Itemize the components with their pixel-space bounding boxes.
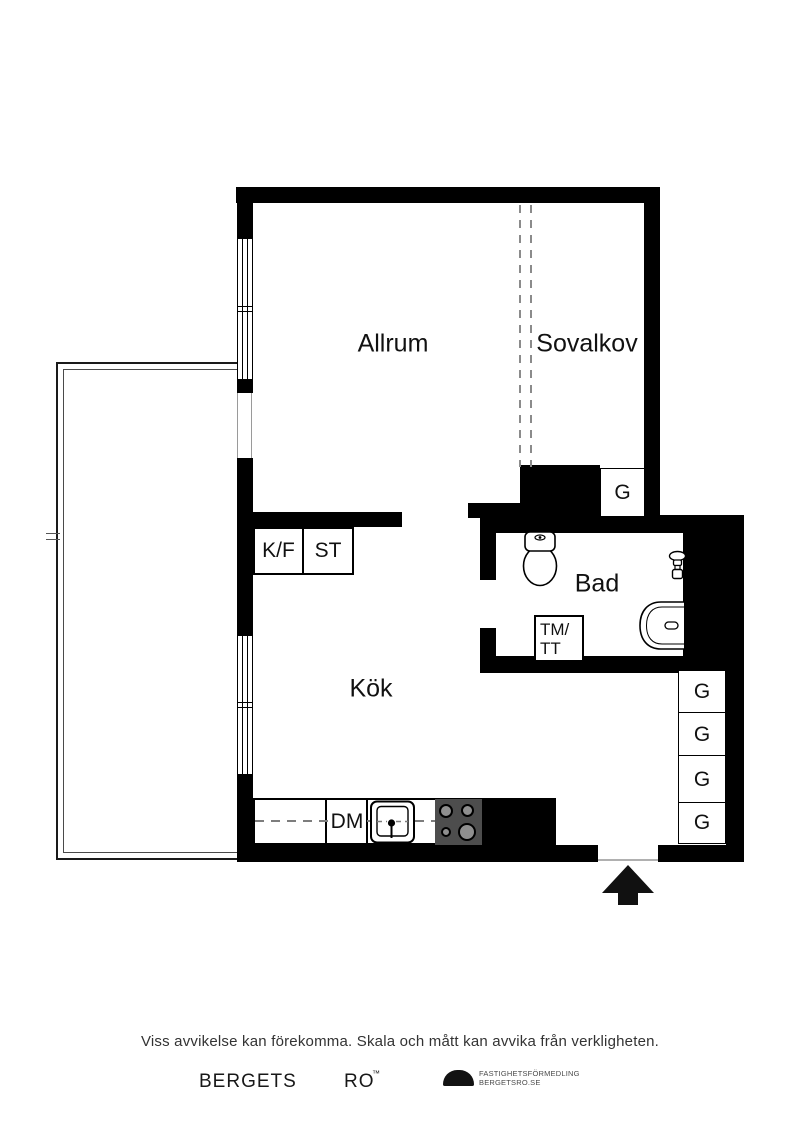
washer-label: TM/ — [540, 620, 569, 639]
wall-right-lower — [726, 663, 744, 862]
room-label-allrum: Allrum — [358, 330, 429, 359]
wall-left-top — [237, 187, 253, 238]
wall-top — [236, 187, 660, 203]
agency-logo-icon — [443, 1070, 474, 1086]
window-allrum-icon — [237, 238, 253, 380]
wall-closet-block — [520, 465, 600, 517]
disclaimer-text: Viss avvikelse kan förekomma. Skala och … — [141, 1033, 659, 1050]
window-kitchen-icon — [237, 635, 253, 775]
balcony-door-jamb — [237, 393, 238, 458]
cleaning-closet-label: ST — [315, 539, 342, 563]
brand-word-bergets: BERGETS — [199, 1071, 297, 1093]
balcony-railing-joint — [46, 539, 60, 540]
agency-line2: BERGETSRO.SE — [479, 1079, 580, 1088]
wall-bath-left-upper — [480, 533, 496, 580]
room-label-bad: Bad — [575, 570, 619, 599]
entrance-arrow-icon — [596, 862, 660, 908]
wardrobe-box: G — [678, 712, 726, 757]
wall-left-mid — [237, 458, 253, 635]
shower-mixer-icon — [666, 550, 690, 582]
room-divider-dashed-line — [530, 205, 532, 467]
wardrobe-label: G — [694, 723, 710, 747]
wardrobe-box: G — [678, 755, 726, 804]
kitchen-sink-icon — [369, 800, 417, 844]
wall-right-upper — [644, 187, 660, 517]
wardrobe-box-sovalkov: G — [600, 468, 645, 517]
cleaning-closet-box: ST — [302, 527, 354, 575]
burner-icon — [441, 827, 451, 837]
wall-kitchen-stub — [237, 512, 402, 527]
burner-icon — [458, 823, 476, 841]
toilet-icon — [518, 529, 563, 589]
balcony-inner-line — [63, 369, 237, 853]
wall-left-sill — [237, 380, 253, 393]
floor-plan: Allrum Sovalkov Bad Kök K/F ST G TM/ TT … — [0, 0, 800, 1131]
agency-text: FASTIGHETSFÖRMEDLING BERGETSRO.SE — [479, 1070, 580, 1087]
stove-icon — [435, 799, 482, 845]
wall-bath-right — [683, 533, 744, 663]
wardrobe-label: G — [694, 768, 710, 792]
dryer-label: TT — [540, 639, 561, 658]
dishwasher-label: DM — [330, 810, 365, 834]
fridge-freezer-box: K/F — [253, 527, 304, 575]
wardrobe-box: G — [678, 802, 726, 844]
brand-word-ro: RO — [344, 1071, 375, 1093]
trademark-icon: ™ — [372, 1069, 380, 1078]
washer-dryer-box: TM/ TT — [534, 615, 584, 662]
room-label-kok: Kök — [349, 675, 392, 704]
burner-icon — [461, 804, 474, 817]
balcony-railing-joint — [46, 533, 60, 534]
wardrobe-label: G — [694, 680, 710, 704]
wardrobe-box: G — [678, 670, 726, 714]
fridge-freezer-label: K/F — [262, 539, 295, 563]
balcony-door-jamb — [251, 393, 252, 458]
burner-icon — [439, 804, 453, 818]
room-label-sovalkov: Sovalkov — [536, 330, 637, 359]
bathroom-sink-icon — [639, 599, 684, 653]
wardrobe-label: G — [614, 481, 630, 505]
wall-counter-end — [482, 798, 556, 845]
wardrobe-label: G — [694, 811, 710, 835]
wall-bottom-left — [237, 845, 598, 862]
room-divider-dashed-line — [519, 205, 521, 467]
entrance-threshold — [598, 859, 658, 861]
